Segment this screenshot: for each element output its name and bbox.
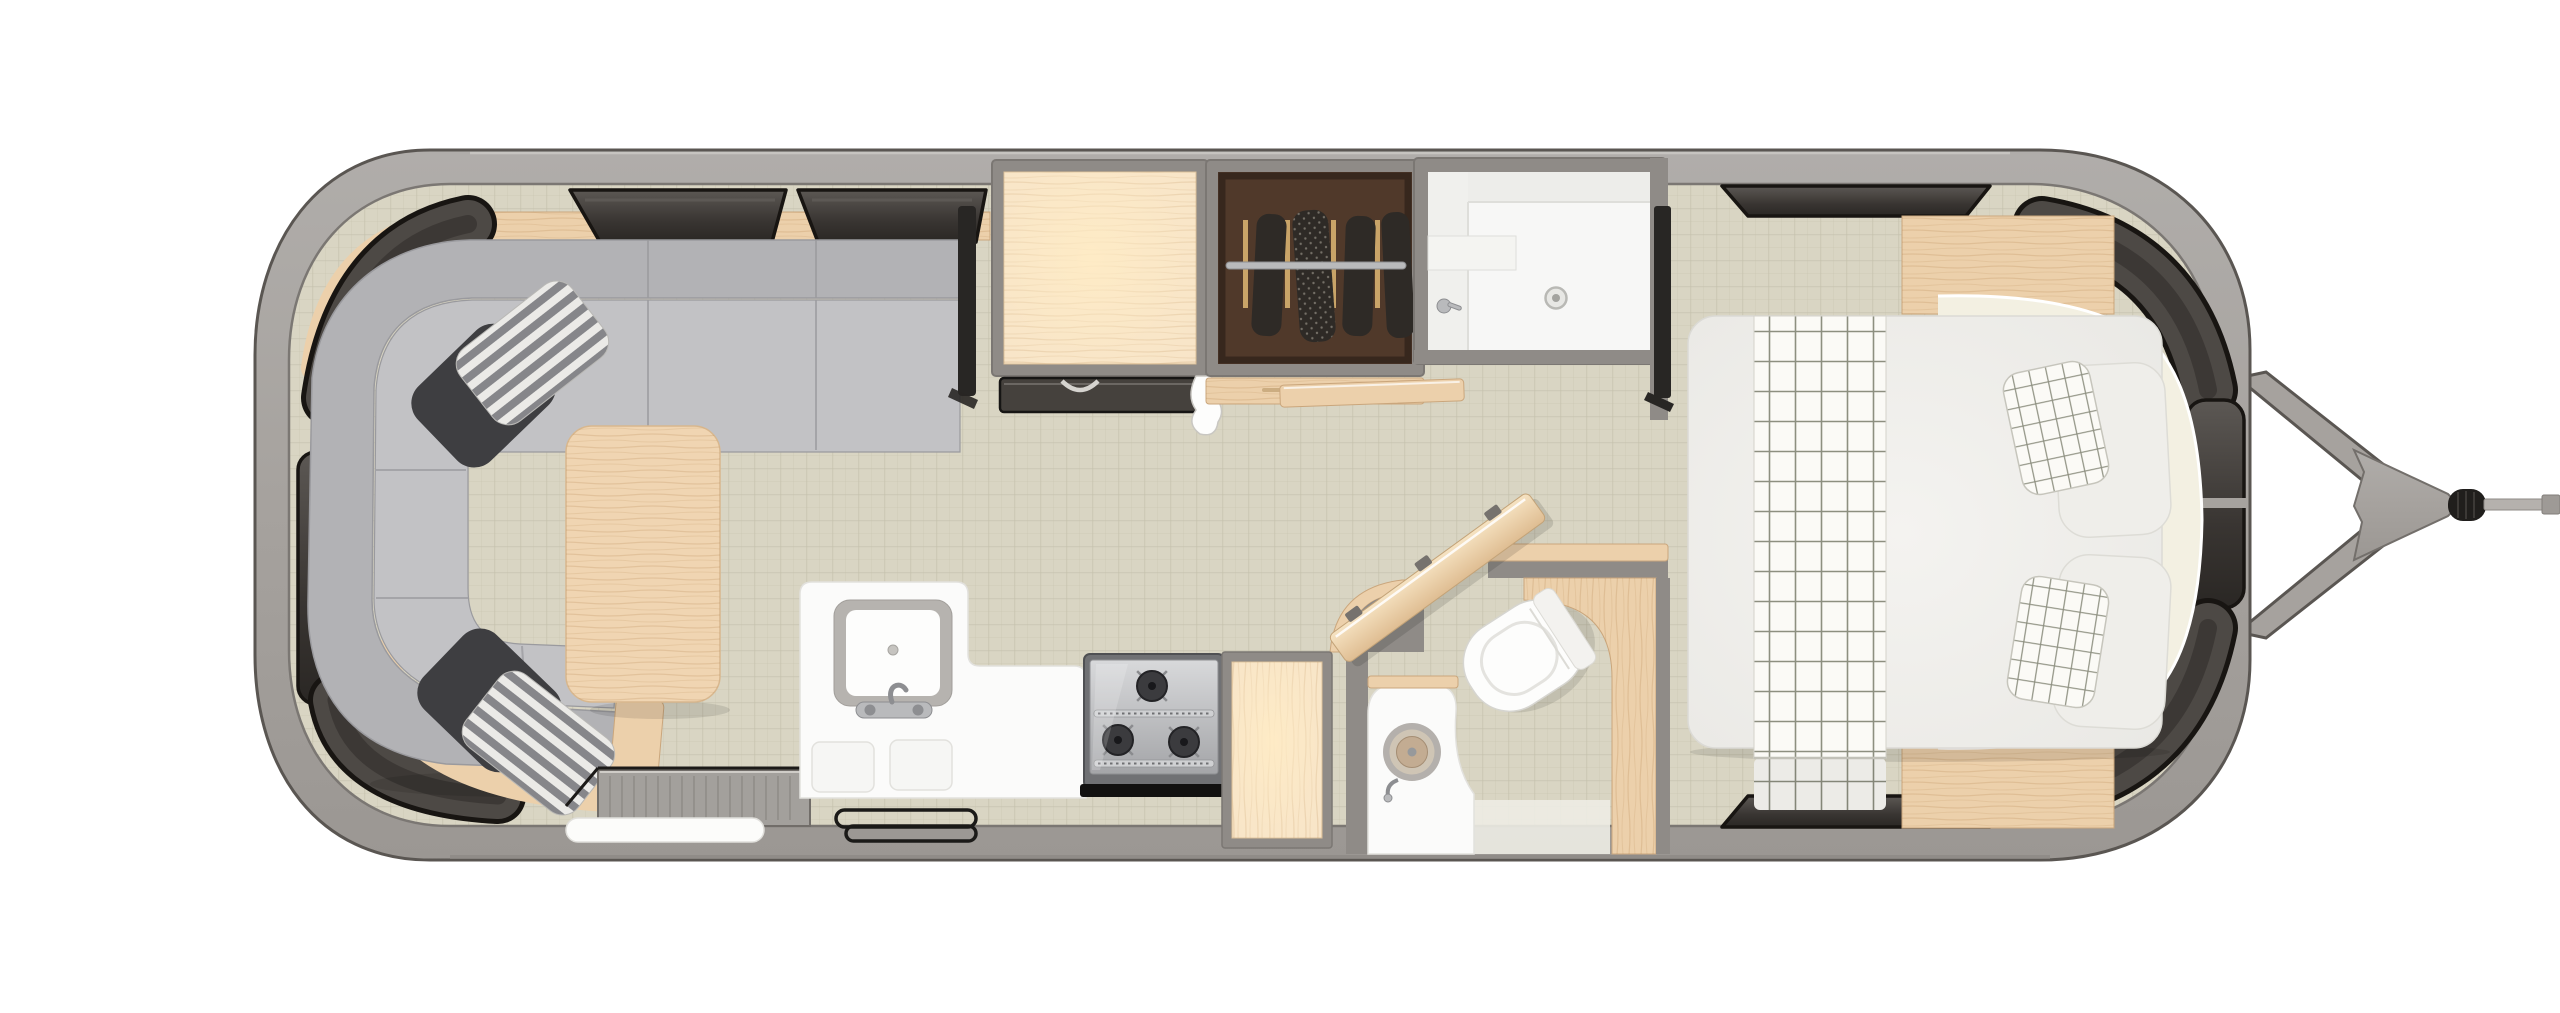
trailer-floorplan [0,0,2560,1013]
hanging-garment-3 [1342,216,1376,337]
vanity-drain [1408,748,1417,757]
hitch-assembly [2238,372,2560,638]
faucet-handle-left [865,705,876,716]
galley-cabinet [992,160,1222,435]
window-lounge-overhead-2 [798,190,986,242]
sink-drain [888,645,898,655]
vanity-cap [1368,676,1458,688]
shower-drain-center [1552,294,1560,302]
hanging-garment-1 [1251,213,1287,336]
plaid-runner [1754,316,1886,758]
bedroom-tv [1654,206,1671,398]
hanging-rod [1226,262,1406,269]
floorplan-stage [0,0,2560,1013]
window-lounge-overhead-1 [570,190,786,242]
lounge-tv [958,206,976,396]
sink-cover-1 [812,742,874,792]
toilet-room-left-wall [1346,648,1368,854]
coffee-table-grain [566,426,720,702]
cabinet-light-glow [1004,172,1196,364]
wardrobe [1206,160,1424,404]
overhead-locker-top [1722,186,1990,216]
shower-half-wall [1428,236,1516,270]
faucet-handle-right [913,705,924,716]
oven-handle [1080,784,1228,797]
vanity-faucet-handle [1384,794,1392,802]
table-shadow [590,701,730,719]
entry-step [566,818,764,842]
jack-rod-tip [2542,495,2560,514]
pantry-glow [1232,662,1322,838]
shower-bottom-wall [1414,350,1668,364]
jack-rod [2484,499,2544,510]
privacy-wall-edge [1656,578,1670,854]
tongue-plate [2354,450,2454,560]
plaid-accent-pillow-bottom [2005,574,2111,710]
toilet-room-top-wall [1488,560,1668,578]
runner-fold-shade [1754,758,1886,810]
sink-cover-2 [890,740,952,790]
